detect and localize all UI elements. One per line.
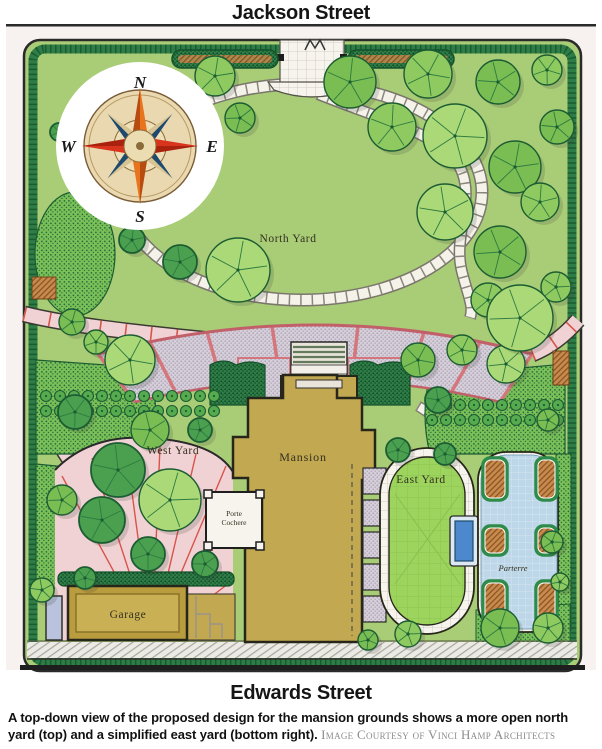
service-wing bbox=[187, 594, 235, 640]
north-yard-label: North Yard bbox=[259, 233, 316, 245]
street-label-jackson: Jackson Street bbox=[0, 0, 602, 24]
porte-cochere-label-1: Porte bbox=[226, 509, 243, 518]
compass-south-label: S bbox=[135, 207, 144, 226]
compass-east-label: E bbox=[205, 137, 217, 156]
reflecting-pool bbox=[450, 516, 478, 566]
compass-west-label: W bbox=[60, 137, 77, 156]
mansion-entry-step bbox=[296, 380, 342, 388]
street-label-edwards: Edwards Street bbox=[0, 678, 602, 706]
caption-credit: Image Courtesy of Vinci Hamp Architects bbox=[321, 727, 555, 742]
compass-north-label: N bbox=[133, 73, 147, 92]
caption: A top-down view of the proposed design f… bbox=[0, 706, 602, 744]
site-plan: N S W E North Yard West Yard East Yard M… bbox=[0, 24, 602, 678]
compass-rose: N S W E bbox=[56, 62, 224, 230]
garage-label: Garage bbox=[110, 609, 147, 621]
porte-cochere-label-2: Cochere bbox=[222, 518, 248, 527]
parterre-label: Parterre bbox=[498, 563, 528, 573]
east-yard-label: East Yard bbox=[396, 474, 446, 486]
mansion-label: Mansion bbox=[279, 450, 327, 464]
west-yard-label: West Yard bbox=[147, 445, 199, 457]
